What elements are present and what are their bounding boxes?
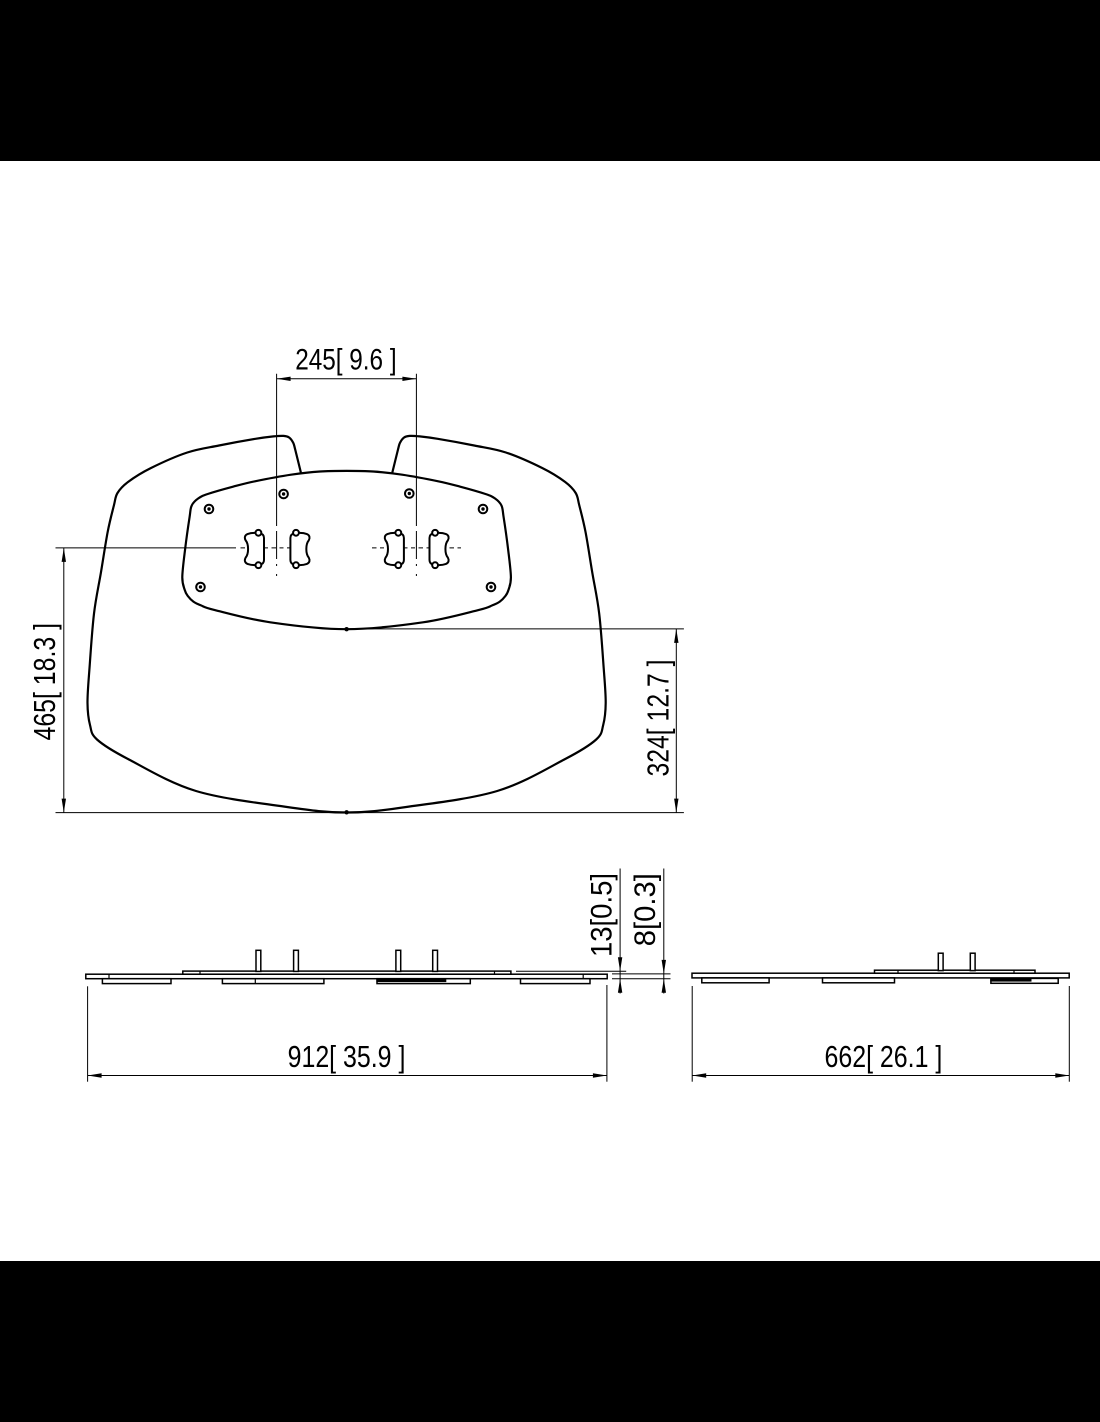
svg-text:912[ 35.9 ]: 912[ 35.9 ] <box>288 1039 406 1074</box>
svg-text:245[ 9.6 ]: 245[ 9.6 ] <box>295 343 396 376</box>
svg-text:8[0.3]: 8[0.3] <box>629 873 662 946</box>
svg-text:465[ 18.3 ]: 465[ 18.3 ] <box>27 623 62 741</box>
svg-text:324[ 12.7 ]: 324[ 12.7 ] <box>641 660 676 777</box>
svg-text:13[0.5]: 13[0.5] <box>586 873 619 957</box>
svg-text:662[ 26.1 ]: 662[ 26.1 ] <box>825 1039 943 1074</box>
